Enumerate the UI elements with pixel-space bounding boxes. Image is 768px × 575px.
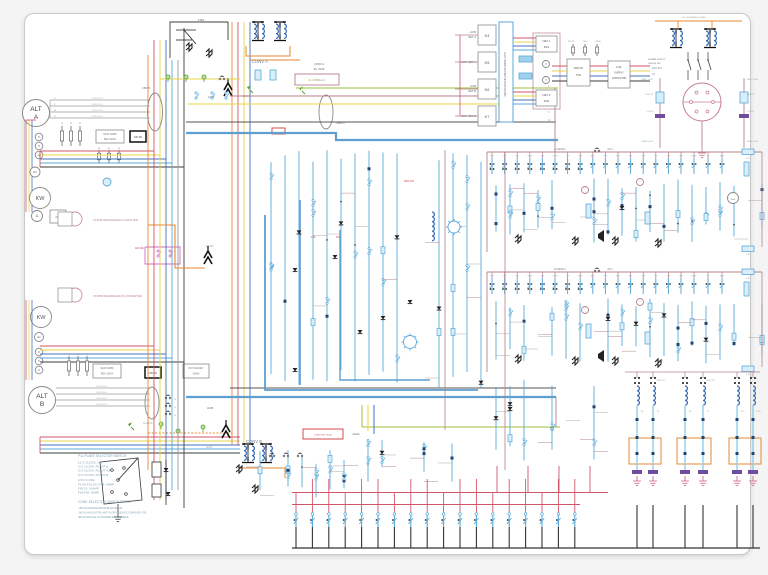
label-band_a-contacts-0: ICHT bbox=[490, 156, 495, 158]
label-plant_b-reg1: MAIN SWBD bbox=[100, 367, 114, 370]
label-acb_sets-k7: K7 bbox=[485, 115, 490, 119]
label-band_a-fb: F10 bbox=[746, 254, 751, 256]
label-conv_b-plus: +S242 bbox=[352, 432, 360, 436]
label-meters-hz: Hz bbox=[37, 335, 41, 339]
label-legend-lines-0: P1L PLANT SELECTOR SWITCH bbox=[78, 454, 127, 458]
label-alt_a-wire_ids-1: 1205.02.01 bbox=[92, 104, 104, 106]
label-net-n2a: NET 2 bbox=[543, 93, 551, 97]
label-band_b-contacts-8: ACB bbox=[591, 275, 595, 278]
alt-b-lower-bundle bbox=[40, 437, 240, 453]
label-supply-t1: 50KVA bbox=[574, 66, 583, 70]
label-plant_a-counter: UTM/B FREQ/REGEN A COUNTER bbox=[93, 218, 138, 222]
conv-a-block: 13A2CONV AS2-K4KL1 MMB+A-CCONV AB+ S245C… bbox=[160, 18, 414, 239]
label-band_b-fb: F18 bbox=[746, 374, 751, 376]
plant-b-meters: KWHzVVV bbox=[26, 300, 52, 380]
label-meters-v: V bbox=[38, 368, 40, 372]
label-psu-la-1: S206.18 bbox=[646, 94, 654, 96]
label-band_b-contacts-3: OVER bbox=[527, 276, 533, 278]
label-alt_a-wire_ids-0: 1205.01.01 bbox=[92, 98, 104, 100]
label-conv_a-amt: AMT ON bbox=[404, 180, 414, 183]
label-band_a-tag: 1211 bbox=[607, 147, 613, 151]
label-acb_sets-b1: ACB bbox=[470, 84, 476, 88]
label-supply-e13: E13 A bbox=[595, 40, 601, 43]
label-conv_a-b2: B+ S245 bbox=[314, 67, 325, 71]
label-plant_a-reg1: MAIN SWBD bbox=[103, 133, 117, 136]
label-conv_a-b1: CONV A bbox=[314, 62, 324, 66]
label-psu-ra-3: MMB- 0-K04 bbox=[747, 141, 759, 143]
label-band_a-contacts-8: ACB bbox=[591, 155, 595, 158]
label-bus_nums-3: 9 bbox=[548, 112, 550, 114]
label-acb_sets-decoupling: DECOUPLING MEASURING SYS. bbox=[503, 51, 507, 96]
label-supply-t2: TSF bbox=[576, 73, 582, 77]
alt-a-meter-column: VVVHzKWAAVR bbox=[26, 120, 66, 223]
label-plant_b-taps-1: 41 bbox=[174, 407, 176, 409]
label-plant_b-counter: UTM/B FREQ/REGEN B CONVERTER bbox=[93, 294, 142, 298]
label-chains-labels-2: K6 bbox=[689, 411, 691, 413]
label-plant_b-bat1: BAT MAGNET bbox=[189, 367, 204, 370]
label-plant_a-e3: E3-MC bbox=[206, 245, 214, 248]
label-supply-f12: 12 F12 bbox=[568, 41, 574, 43]
label-supply-k2: SUPPLY bbox=[614, 72, 624, 75]
label-band_a-contacts-4: OVS bbox=[541, 156, 546, 158]
label-conv_a-s2: S2-K4 bbox=[243, 95, 250, 98]
central-vertical-buses: ACBCBCT1 bbox=[142, 22, 250, 508]
label-band_a-f: F11 bbox=[746, 158, 750, 160]
label-meters-kw: KW bbox=[36, 196, 46, 202]
label-band_b-contacts-0: ICHT bbox=[490, 276, 495, 278]
label-band_b-f: F19 bbox=[746, 278, 751, 280]
label-chains-labels-0: K4 bbox=[641, 411, 643, 413]
label-legend-lines-5: A B C FUSE bbox=[78, 478, 95, 482]
label-net-v: V bbox=[545, 62, 547, 66]
label-conv_b-s2: S2-K6 bbox=[206, 447, 213, 449]
label-psu-la-2: 2-1K02 bbox=[647, 111, 654, 113]
label-acb_sets-k5: K5 bbox=[485, 61, 490, 65]
label-net-v: V bbox=[545, 78, 547, 82]
label-band_b-tag: 2011 bbox=[607, 267, 613, 271]
label-acb_sets-k4: K4 bbox=[485, 34, 490, 38]
label-conv_a-sub: 13A2 bbox=[198, 18, 205, 22]
label-supply-k1: K44 bbox=[617, 65, 622, 69]
label-meters-v: V bbox=[38, 350, 40, 354]
centre-horizontal-buses: 487916 bbox=[186, 86, 560, 434]
label-band_b-reset: B RESET bbox=[554, 267, 566, 271]
label-psu-main: AC 100V(MAIN) SQ.MA1 bbox=[682, 16, 706, 19]
label-band_b-contacts-12: UVB bbox=[641, 276, 645, 278]
label-acb_sets-a2: SET A bbox=[468, 35, 476, 39]
label-band_a-contacts-6: LOP bbox=[566, 156, 570, 158]
label-conv_panel-lines-0: CONV. SELECTOR SWITCH PANEL bbox=[78, 500, 131, 504]
label-alt_b-wire_ids-3: 1206.04.01 bbox=[96, 404, 108, 406]
label-band_a-contacts-16: H-OFF bbox=[691, 156, 697, 158]
label-legend-lines-8: F16-F20: 6AMP bbox=[78, 491, 99, 495]
label-psu-ra-2: 2-1K04 bbox=[747, 111, 754, 113]
label-conv_a-name: CONV A bbox=[252, 59, 268, 64]
label-plant_a-reg2: REG 200VA bbox=[104, 138, 117, 141]
label-conv_a-f05: F05 bbox=[311, 236, 316, 239]
electrical-schematic: ALTAU1205.01.01V1205.02.01W1205.03.01N12… bbox=[0, 0, 768, 575]
label-band_b-contacts-5: SCCB bbox=[553, 276, 559, 278]
label-plant_b-taps-2: 42 bbox=[174, 415, 176, 417]
label-conv_panel-lines-1: -45:00 ANGLE ENGINE ENABLE bbox=[78, 506, 122, 510]
label-band_a-reset: A RESET bbox=[554, 147, 566, 151]
label-conv_panel-lines-2: -90:00 ANGLE PLANT A OR B BUS COUPLER ON bbox=[78, 511, 146, 515]
centre-relay-grid bbox=[265, 150, 505, 470]
label-meters-v: V bbox=[38, 359, 40, 363]
label-band_b-contacts-9: EUS bbox=[604, 276, 608, 278]
label-psu-la-0: MMB+ 12-A1 bbox=[641, 78, 654, 81]
alt-a-generator: ALTAU1205.01.01V1205.02.01W1205.03.01N12… bbox=[23, 98, 151, 127]
label-psu-la-3: MMB- 0-K02 bbox=[642, 141, 654, 143]
label-alt_a-l1: ALT bbox=[30, 106, 41, 113]
label-alt_b-l2: B bbox=[40, 401, 44, 408]
label-chains-labels-3: K7 bbox=[707, 411, 709, 413]
label-chains-off: NWP OFF bbox=[707, 380, 715, 382]
label-band_b-contacts-4: OVS bbox=[541, 276, 546, 278]
power-supply-unit: AC 100V(MAIN) SQ.MA1POWER SUPPLYON/OFF S… bbox=[641, 16, 759, 158]
label-meters-v: V bbox=[38, 135, 40, 139]
label-chains-labels-1: K5 bbox=[657, 411, 659, 413]
label-plant_a-fuses2-1: F5 bbox=[108, 148, 111, 150]
label-band_a-contacts-7: UCB bbox=[578, 156, 583, 158]
plant-a-fuse-bank: F1F2F3MAIN SWBDREG 200VA24V DCF4F5F6 bbox=[60, 123, 146, 186]
label-chains-off: NWP OFF bbox=[657, 380, 665, 382]
bottom-contact-strip bbox=[292, 479, 760, 548]
label-plant_a-cbct: CBCT1 bbox=[142, 86, 151, 90]
label-meters-v: V bbox=[38, 144, 40, 148]
label-plant_a-fuses-2: F3 bbox=[79, 123, 82, 125]
label-band_a-contacts-9: EUS bbox=[604, 156, 608, 158]
label-acb_sets-b2: SET B bbox=[468, 89, 476, 93]
label-band_b-contacts-17: UB bbox=[707, 276, 710, 278]
plant-b-bundle: F1F2F3MAIN SWBDREG 200VA24V DCBAT MAGNET… bbox=[40, 346, 232, 436]
label-plant_b-dc: 24V DC bbox=[149, 373, 157, 375]
label-psu-ra-1: S206.07 bbox=[747, 94, 755, 96]
acb-set-boxes: K4ACBSET AK5NWP SET AK6ACBSET BK7NWP SET… bbox=[455, 22, 513, 126]
label-chains-labels-5: KD2 bbox=[757, 411, 761, 413]
label-alt_b-l1: ALT bbox=[36, 393, 47, 400]
label-plant_a-mc: 4A1 MC bbox=[135, 247, 144, 250]
label-supply-out1: 220V 61V bbox=[652, 68, 663, 70]
label-conv_b-box: CONV B B+ S242 bbox=[314, 435, 332, 437]
label-net-n1a: NET 1 bbox=[543, 39, 551, 43]
label-psu-sw1: POWER SUPPLY bbox=[648, 59, 666, 61]
label-plant_a-fuses2-2: F6 bbox=[118, 148, 121, 150]
label-alt_a-wire_ids-3: 1205.04.01 bbox=[92, 116, 104, 118]
label-conv_a-kl1: KL1 MMB+A-C bbox=[309, 79, 326, 82]
label-band_a-contacts-5: SCCB bbox=[553, 156, 559, 158]
label-net-n2b: KD2 bbox=[544, 99, 550, 103]
label-plant_a-fuses-1: F2 bbox=[70, 123, 73, 125]
label-band_b-contacts-16: H-OFF bbox=[691, 276, 697, 278]
label-legend-lines-4: 9 O CLOCK: PLANT B bbox=[78, 473, 108, 477]
screenshot-canvas: ALTAU1205.01.01V1205.02.01W1205.03.01N12… bbox=[0, 0, 768, 575]
label-plant_b-reg2: REG 200VA bbox=[101, 373, 114, 376]
label-psu-ra-0: MB2+ 12-B1 bbox=[747, 79, 759, 81]
label-band_a-contacts-12: UVB bbox=[641, 156, 645, 158]
label-plant_a-fuses-0: F1 bbox=[61, 123, 64, 125]
plant-a-counter: UTM/B FREQ/REGEN A COUNTER4A1 MCE3-MC bbox=[58, 212, 214, 250]
label-alt_b-wire_ids-2: 1206.03.01 bbox=[96, 398, 108, 400]
label-plant_b-acb: ACB bbox=[207, 406, 213, 410]
label-band_a-contacts-3: OVER bbox=[527, 156, 533, 158]
label-band_b-contacts-7: ACB bbox=[578, 275, 582, 278]
label-plant_b-bat2: SWBD bbox=[193, 374, 200, 376]
label-alt_b-wire_ids-0: 1206.01.01 bbox=[96, 386, 108, 388]
label-conv_panel-lines-3: 45:00 ANGLE CONVERTER ENABLE bbox=[78, 515, 129, 519]
plant-a-bundle bbox=[40, 151, 184, 167]
label-band_a-contacts-17: UB bbox=[707, 156, 710, 158]
label-acb_sets-a1: ACB bbox=[470, 30, 476, 34]
contactor-coil-chains: K4K5NWP OFFK6K7NWP OFFKD1KD2 bbox=[625, 372, 761, 486]
label-supply-out2: AT bbox=[652, 73, 655, 76]
label-supply-k3: CONTACTOR bbox=[612, 77, 627, 80]
legend-notes: P1L PLANT SELECTOR SWITCH12 O CLOCK: OFF… bbox=[78, 454, 146, 519]
label-alt_b-wire_ids-1: 1206.02.01 bbox=[96, 392, 108, 394]
relay-band-band_b: B RESET2011F19ICHTLOPVALOVEROVSSCCBLOPAC… bbox=[487, 267, 764, 376]
label-conv_b-name: CONV B bbox=[246, 439, 262, 444]
label-meters-kw: KW bbox=[37, 315, 47, 321]
label-psu-sw2: ON/OFF SW bbox=[648, 63, 661, 65]
label-plant_a-fuses2-0: F4 bbox=[98, 148, 101, 150]
label-legend-lines-3: 6 O CLOCK: PLANT A/B bbox=[78, 469, 111, 473]
relay-band-band_a: A RESET1211F11ICHTLOPVALOVEROVSSCCBLOPUC… bbox=[487, 147, 764, 256]
alt-b-generator: ALTB1206.01.011206.02.011206.03.011206.0… bbox=[29, 386, 151, 414]
label-alt_a-wire_ids-2: 1205.03.01 bbox=[92, 110, 104, 112]
label-net-n1b: KD1 bbox=[544, 45, 550, 49]
label-chains-labels-4: KD1 bbox=[741, 411, 745, 413]
label-supply-f13: 2 F13 bbox=[583, 41, 588, 43]
label-plant_b-taps-0: 40 bbox=[174, 399, 176, 401]
label-band_b-contacts-6: LOP bbox=[566, 276, 570, 278]
label-meters-hz: Hz bbox=[33, 170, 37, 174]
label-acb_sets-k6: K6 bbox=[485, 88, 490, 92]
plant-b-counter: UTM/B FREQ/REGEN B CONVERTER bbox=[58, 288, 142, 302]
label-plant_a-dc: 24V DC bbox=[134, 137, 142, 139]
conv-b-block: CONV BS2-K6CONV B B+ S242+S242 bbox=[128, 423, 454, 498]
